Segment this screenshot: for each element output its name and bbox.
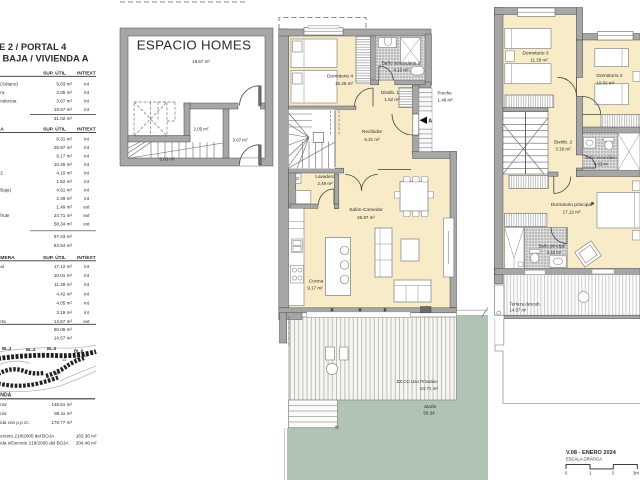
- svg-text:Dormitorio principal: Dormitorio principal: [551, 202, 592, 208]
- svg-text:Dormitorio 2: Dormitorio 2: [596, 73, 622, 79]
- svg-text:17.12 m²: 17.12 m²: [54, 264, 73, 269]
- svg-text:Distrib. 2: Distrib. 2: [554, 140, 573, 145]
- svg-text:58.34 m²: 58.34 m²: [54, 222, 73, 227]
- svg-text:int: int: [84, 99, 90, 104]
- svg-text:Baño principal: Baño principal: [539, 244, 566, 249]
- svg-text:24.71 m²: 24.71 m²: [420, 386, 438, 391]
- svg-text:MERA: MERA: [0, 255, 15, 261]
- svg-text:89.11 m²: 89.11 m²: [54, 411, 72, 416]
- svg-text:BL.5: BL.5: [47, 346, 57, 351]
- svg-text:int: int: [84, 81, 90, 86]
- svg-text:19.67 m²: 19.67 m²: [192, 59, 210, 64]
- svg-text:int: int: [84, 291, 90, 296]
- svg-text:ext: ext: [83, 319, 90, 324]
- svg-text:9.17 m²: 9.17 m²: [307, 286, 323, 291]
- svg-text:Jardín: Jardín: [424, 404, 437, 409]
- svg-text:int: int: [84, 179, 90, 184]
- svg-text:ida s/Decreto 218/2005 del BOJ: ida s/Decreto 218/2005 del BOJA: [0, 441, 69, 446]
- svg-text:14.57 m²: 14.57 m²: [54, 319, 73, 324]
- svg-text:int: int: [84, 137, 90, 142]
- svg-text:al: al: [0, 264, 4, 269]
- svg-text:3m: 3m: [633, 471, 639, 476]
- svg-text:ida con p.p zc.: ida con p.p zc.: [0, 420, 30, 425]
- svg-text:5.63 m²: 5.63 m²: [56, 81, 72, 86]
- svg-text:2: 2: [0, 171, 3, 176]
- svg-text:3.67 m²: 3.67 m²: [233, 138, 248, 143]
- svg-text:int: int: [84, 196, 90, 201]
- svg-text:11.29 m²: 11.29 m²: [530, 58, 548, 63]
- svg-text:int: int: [84, 310, 90, 315]
- svg-text:26.97 m²: 26.97 m²: [357, 215, 375, 220]
- svg-text:1.52 m²: 1.52 m²: [384, 97, 400, 102]
- svg-text:ra: ra: [0, 90, 5, 95]
- svg-text:4.42 m²: 4.42 m²: [56, 291, 72, 296]
- svg-text:E 2 / PORTAL 4: E 2 / PORTAL 4: [0, 41, 67, 52]
- svg-text:3.19 m²: 3.19 m²: [56, 310, 72, 315]
- svg-text:rior: rior: [0, 411, 7, 416]
- svg-text:NDA: NDA: [0, 393, 11, 399]
- svg-text:3.19 m²: 3.19 m²: [555, 147, 571, 152]
- svg-text:4.61 m²: 4.61 m²: [56, 188, 72, 193]
- svg-text:12: 12: [74, 356, 78, 360]
- svg-text:SUP. ÚTIL: SUP. ÚTIL: [43, 254, 66, 261]
- svg-text:SUP. ÚTIL: SUP. ÚTIL: [43, 70, 66, 77]
- svg-text:13: 13: [62, 358, 66, 362]
- svg-text:INT/EXT: INT/EXT: [77, 255, 96, 261]
- svg-text:50.06 m²: 50.06 m²: [54, 327, 73, 332]
- svg-text:Cocina: Cocina: [309, 279, 324, 284]
- svg-text:Baño secundario 2: Baño secundario 2: [382, 61, 421, 66]
- svg-text:Baja): Baja): [0, 188, 11, 193]
- svg-text:26.97 m²: 26.97 m²: [54, 145, 73, 150]
- svg-text:1.52 m²: 1.52 m²: [56, 179, 72, 184]
- svg-text:int: int: [84, 90, 90, 95]
- svg-text:148.51 m²: 148.51 m²: [51, 402, 72, 407]
- svg-text:ext: ext: [83, 222, 90, 227]
- svg-text:ESPACIO HOMES: ESPACIO HOMES: [137, 38, 251, 53]
- svg-text:Distrib. 1: Distrib. 1: [381, 90, 399, 95]
- svg-text:Porche: Porche: [438, 91, 453, 96]
- svg-text:Lavadero: Lavadero: [315, 174, 335, 179]
- svg-text:10.01 m²: 10.01 m²: [596, 80, 614, 85]
- svg-text:int: int: [84, 188, 90, 193]
- svg-text:INT/EXT: INT/EXT: [77, 71, 96, 77]
- svg-text:4.05 m²: 4.05 m²: [56, 301, 72, 306]
- svg-text:58.34: 58.34: [423, 411, 435, 416]
- svg-text:24.71 m²: 24.71 m²: [54, 213, 73, 218]
- svg-text:int: int: [84, 162, 90, 167]
- svg-text:67.43 m²: 67.43 m²: [54, 234, 73, 239]
- svg-text:163.36 m²: 163.36 m²: [76, 434, 97, 439]
- svg-text:31.02 m²: 31.02 m²: [54, 116, 73, 121]
- svg-text:14.57 m²: 14.57 m²: [54, 336, 73, 341]
- svg-text:Recibidor: Recibidor: [362, 129, 383, 135]
- svg-text:A BAJA / VIVIENDA A: A BAJA / VIVIENDA A: [0, 53, 89, 64]
- svg-text:8.31 m²: 8.31 m²: [364, 137, 380, 142]
- svg-text:rior: rior: [0, 402, 7, 407]
- svg-text:Baño secundario: Baño secundario: [585, 155, 617, 160]
- svg-text:V.08 - ENERO 2024: V.08 - ENERO 2024: [566, 450, 617, 456]
- svg-text:Dormitorio 4: Dormitorio 4: [327, 74, 353, 80]
- svg-text:int: int: [84, 171, 90, 176]
- svg-text:ESCALA GRÁFICA: ESCALA GRÁFICA: [566, 457, 602, 462]
- svg-text:4.10 m²: 4.10 m²: [393, 68, 409, 73]
- svg-text:ecreto 218/2005 del BOJA: ecreto 218/2005 del BOJA: [0, 434, 55, 439]
- svg-text:Terraza descub.: Terraza descub.: [510, 302, 541, 307]
- svg-text:4.42 m²: 4.42 m²: [547, 250, 562, 255]
- svg-text:ext: ext: [83, 213, 90, 218]
- svg-text:8.31 m²: 8.31 m²: [56, 137, 72, 142]
- svg-text:10.26 m²: 10.26 m²: [335, 81, 353, 86]
- svg-text:2.05 m²: 2.05 m²: [56, 90, 72, 95]
- svg-text:2.05 m²: 2.05 m²: [194, 127, 209, 132]
- svg-text:5.63 m²: 5.63 m²: [160, 157, 175, 162]
- svg-text:int: int: [84, 154, 90, 159]
- svg-text:INT/EXT: INT/EXT: [77, 127, 96, 133]
- svg-text:int: int: [84, 282, 90, 287]
- svg-text:A: A: [0, 127, 4, 133]
- svg-text:A: A: [428, 119, 432, 125]
- svg-text:1.49 m²: 1.49 m²: [438, 98, 454, 103]
- svg-text:ZZ.CC.Uso Privativo: ZZ.CC.Uso Privativo: [396, 379, 438, 384]
- svg-text:1.49 m²: 1.49 m²: [56, 205, 72, 210]
- svg-text:ext: ext: [83, 205, 90, 210]
- svg-text:2.49 m²: 2.49 m²: [56, 196, 72, 201]
- svg-text:17.12 m²: 17.12 m²: [563, 210, 581, 215]
- svg-text:BL.4: BL.4: [26, 347, 36, 352]
- svg-text:10.01 m²: 10.01 m²: [54, 273, 73, 278]
- svg-text:4.10 m²: 4.10 m²: [56, 171, 72, 176]
- svg-text:int: int: [84, 273, 90, 278]
- svg-text:9.17 m²: 9.17 m²: [56, 154, 72, 159]
- svg-text:84.54 m²: 84.54 m²: [54, 243, 73, 248]
- svg-text:11.29 m²: 11.29 m²: [54, 282, 72, 287]
- svg-text:Salón-Comedor: Salón-Comedor: [349, 207, 383, 213]
- svg-text:10.26 m²: 10.26 m²: [54, 162, 73, 167]
- svg-text:179.77 m²: 179.77 m²: [51, 420, 72, 425]
- svg-text:int: int: [84, 301, 90, 306]
- svg-text:int: int: [84, 107, 90, 112]
- svg-text:(Sótano): (Sótano): [0, 81, 18, 86]
- svg-text:ndencia: ndencia: [0, 99, 17, 104]
- svg-text:204.46 m²: 204.46 m²: [76, 441, 97, 446]
- svg-text:int: int: [84, 145, 90, 150]
- svg-text:int: int: [84, 264, 90, 269]
- svg-text:2.49 m²: 2.49 m²: [317, 181, 333, 186]
- svg-text:Dormitorio 3: Dormitorio 3: [522, 51, 548, 57]
- svg-text:14.57 m²: 14.57 m²: [510, 308, 528, 313]
- svg-text:rta: rta: [0, 319, 6, 324]
- svg-text:11: 11: [84, 354, 88, 358]
- svg-text:frute: frute: [0, 213, 10, 218]
- svg-text:3.67 m²: 3.67 m²: [56, 99, 72, 104]
- svg-text:SUP. ÚTIL: SUP. ÚTIL: [43, 126, 66, 133]
- svg-text:19.67 m²: 19.67 m²: [54, 107, 73, 112]
- svg-text:4.03 m²: 4.03 m²: [594, 162, 609, 167]
